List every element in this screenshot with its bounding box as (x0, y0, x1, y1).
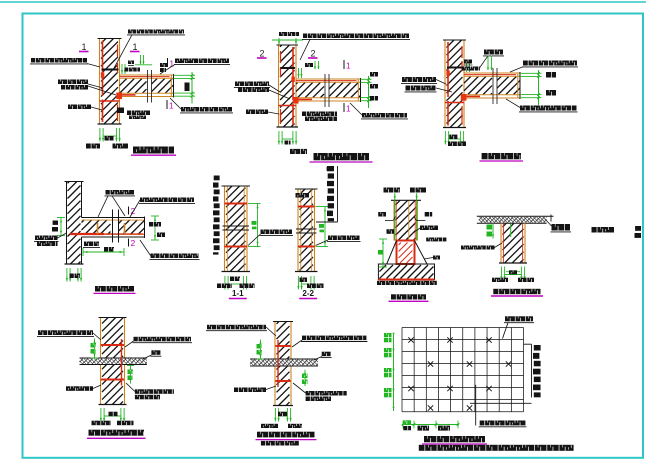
svg-text:1: 1 (133, 42, 138, 52)
svg-text:2: 2 (311, 49, 316, 59)
svg-text:1: 1 (82, 42, 87, 52)
svg-text:1: 1 (346, 105, 351, 114)
svg-text:2-2: 2-2 (302, 289, 314, 298)
svg-text:1: 1 (346, 62, 351, 71)
svg-text:1-1: 1-1 (232, 289, 244, 298)
svg-text:2: 2 (260, 49, 265, 59)
svg-text:1: 1 (169, 102, 174, 111)
svg-text:2: 2 (131, 238, 136, 248)
